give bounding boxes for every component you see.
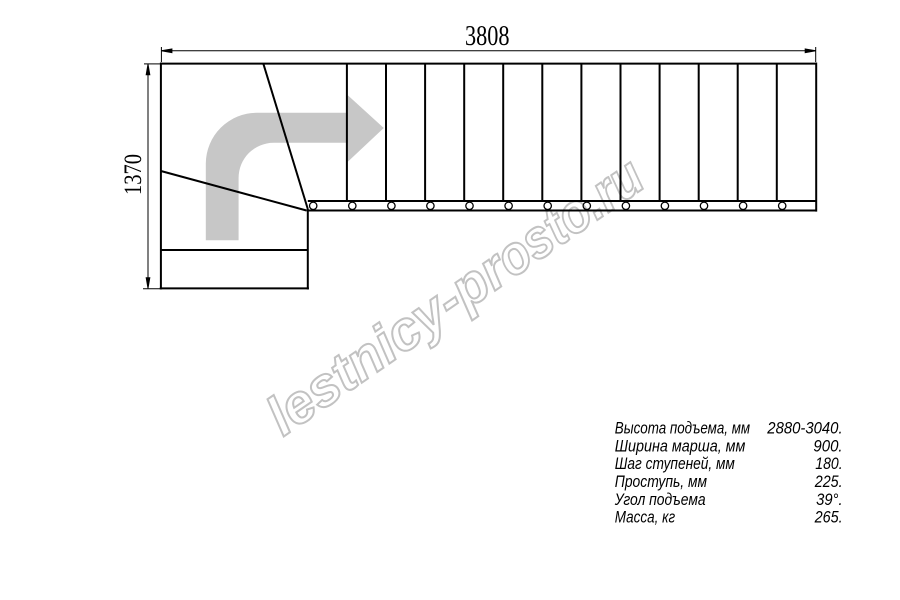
svg-text:1370: 1370	[119, 154, 147, 195]
svg-text:Ширина марша, мм: Ширина марша, мм	[615, 437, 746, 455]
svg-text:39°.: 39°.	[816, 491, 843, 509]
svg-text:3808: 3808	[465, 21, 510, 52]
svg-text:Масса, кг: Масса, кг	[615, 509, 675, 527]
svg-text:Угол подъема: Угол подъема	[614, 491, 706, 509]
svg-text:2880-3040.: 2880-3040.	[766, 420, 842, 438]
svg-text:Шаг ступеней, мм: Шаг ступеней, мм	[615, 455, 735, 473]
svg-text:900.: 900.	[813, 437, 842, 455]
svg-text:180.: 180.	[815, 455, 842, 473]
svg-text:225.: 225.	[814, 473, 843, 491]
svg-text:265.: 265.	[814, 509, 843, 527]
svg-text:Проступь, мм: Проступь, мм	[615, 473, 707, 491]
svg-text:Высота подъема, мм: Высота подъема, мм	[615, 420, 750, 438]
